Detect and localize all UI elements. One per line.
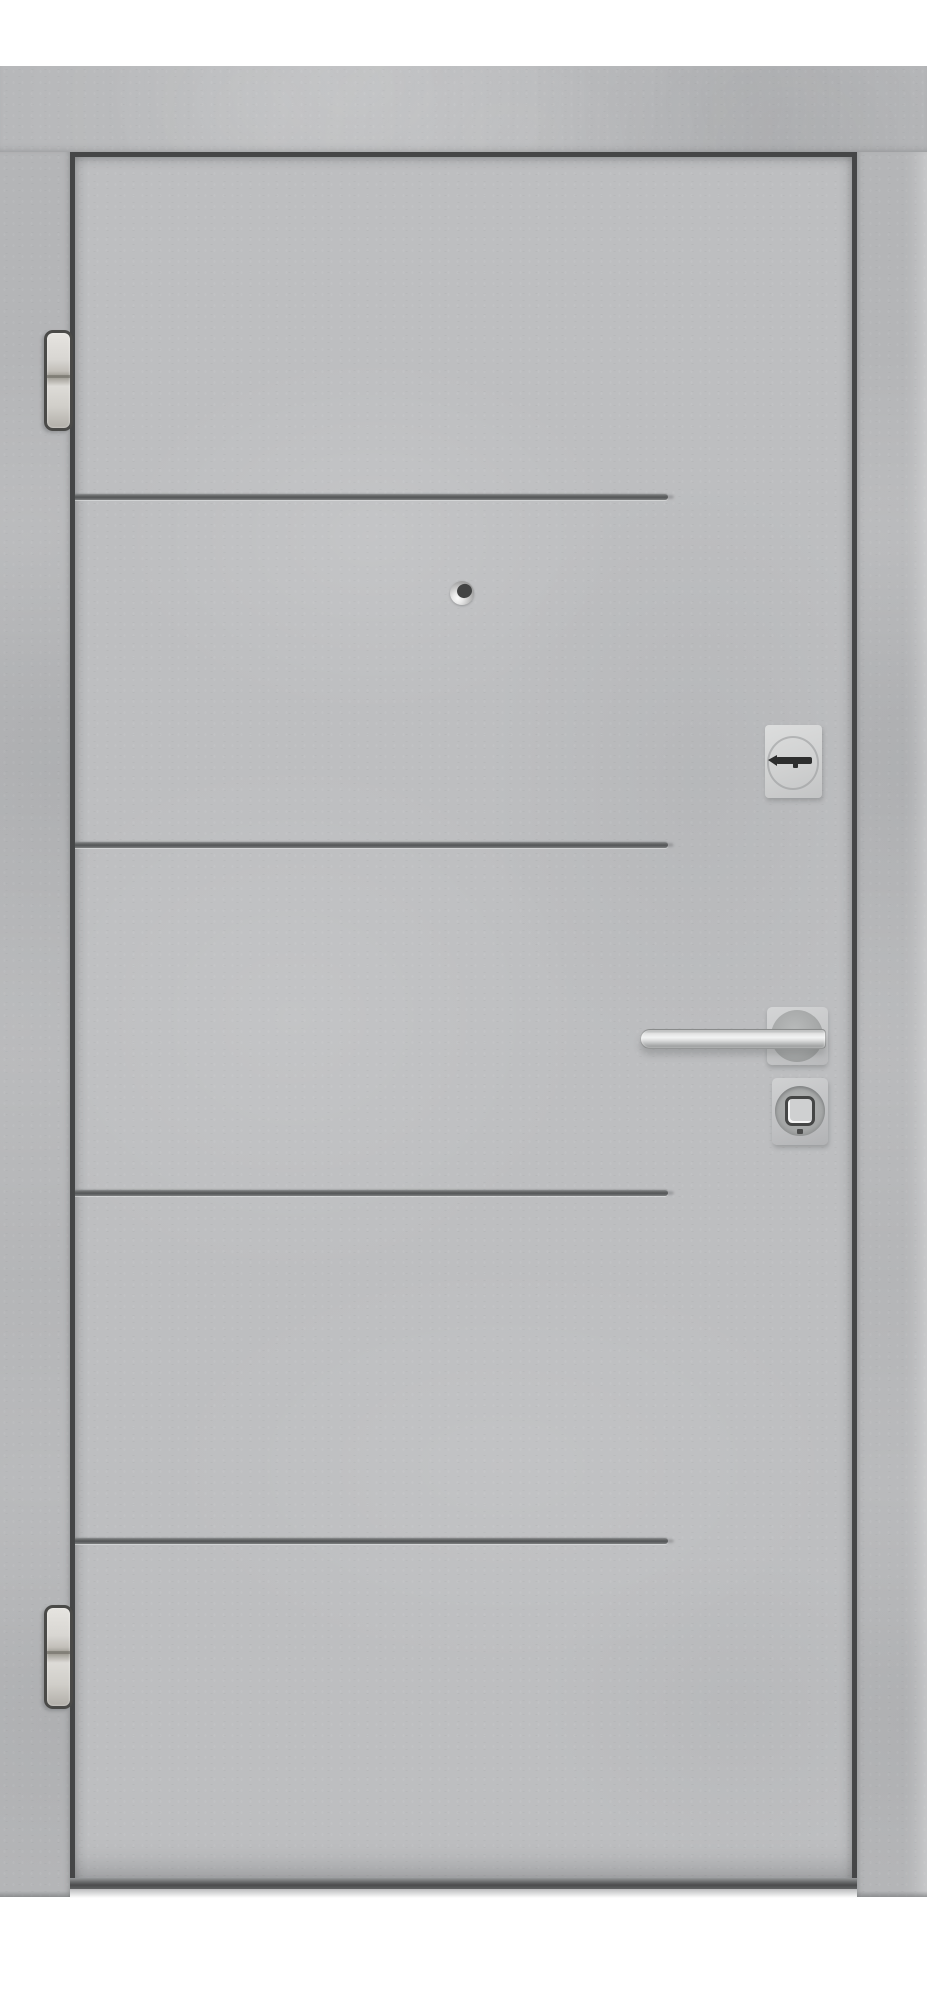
leaf-groove-3 bbox=[75, 1190, 668, 1196]
top-hinge bbox=[44, 330, 73, 431]
door-photo bbox=[0, 0, 927, 2000]
thumbturn-escutcheon bbox=[772, 1078, 828, 1145]
cylinder-escutcheon bbox=[765, 725, 822, 798]
door-frame-right-jamb bbox=[857, 152, 927, 1897]
door-frame-header bbox=[0, 66, 927, 154]
leaf-bottom-shadow bbox=[70, 1889, 857, 1898]
door-handle-lever bbox=[640, 1029, 826, 1049]
leaf-bottom-edge bbox=[70, 1878, 857, 1889]
door-leaf bbox=[75, 157, 852, 1879]
key-slot bbox=[776, 757, 812, 764]
peephole bbox=[450, 581, 474, 605]
leaf-groove-4 bbox=[75, 1538, 668, 1544]
thumbturn-knob bbox=[785, 1096, 815, 1126]
peephole-lens bbox=[455, 582, 473, 600]
bottom-hinge bbox=[44, 1605, 73, 1709]
thumbturn-screw bbox=[797, 1129, 803, 1134]
leaf-gap-right bbox=[852, 152, 857, 1879]
leaf-groove-2 bbox=[75, 842, 668, 848]
leaf-groove-1 bbox=[75, 494, 668, 500]
